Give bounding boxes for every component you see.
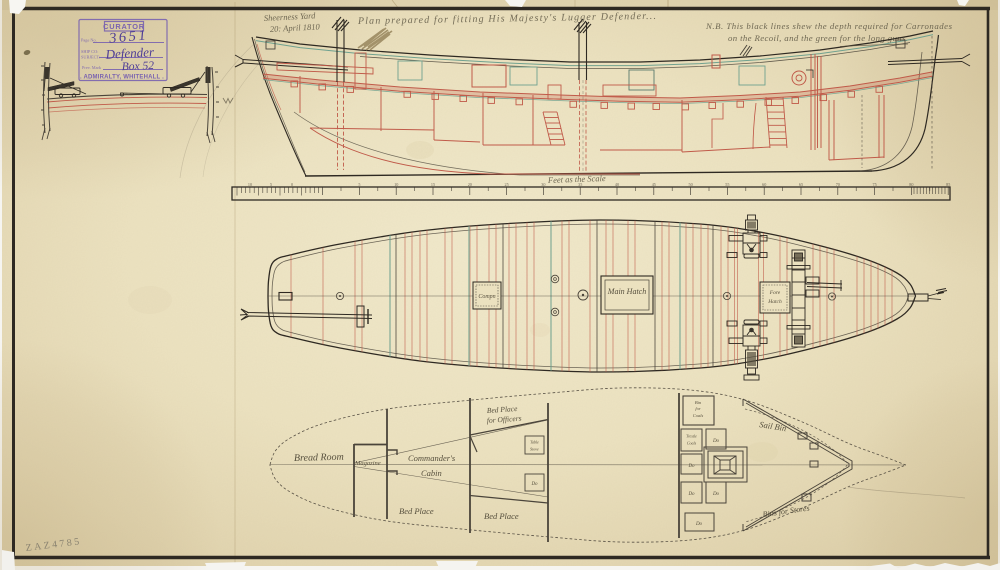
svg-text:0: 0	[291, 182, 293, 187]
svg-text:Commander's: Commander's	[408, 453, 456, 463]
svg-text:Do: Do	[687, 464, 695, 469]
svg-text:SHIP CO:: SHIP CO:	[81, 49, 98, 54]
svg-text:85: 85	[946, 182, 950, 187]
svg-text:Coals: Coals	[687, 441, 697, 446]
svg-text:Compn: Compn	[478, 294, 495, 300]
svg-text:60: 60	[762, 182, 766, 187]
svg-text:25: 25	[505, 182, 509, 187]
svg-text:Stove: Stove	[530, 447, 539, 452]
svg-text:N.B. This black lines shew the: N.B. This black lines shew the depth req…	[705, 21, 953, 31]
svg-text:65: 65	[799, 182, 803, 187]
svg-text:35: 35	[578, 182, 582, 187]
svg-text:SUBJECT:: SUBJECT:	[81, 55, 100, 60]
svg-text:30: 30	[541, 182, 545, 187]
svg-text:70: 70	[836, 182, 840, 187]
svg-text:Do: Do	[712, 439, 720, 444]
svg-text:Main Hatch: Main Hatch	[607, 287, 646, 296]
svg-text:80: 80	[909, 182, 913, 187]
svg-text:Do: Do	[687, 492, 695, 497]
svg-text:55: 55	[725, 182, 729, 187]
svg-text:Do: Do	[695, 522, 703, 527]
svg-text:Cabin: Cabin	[421, 468, 442, 478]
svg-text:. ADMIRALTY, WHITEHALL .: . ADMIRALTY, WHITEHALL .	[80, 75, 164, 81]
svg-text:Bed Place: Bed Place	[399, 506, 434, 516]
svg-text:40: 40	[615, 182, 619, 187]
svg-text:Page No.: Page No.	[81, 38, 97, 43]
svg-text:Defender: Defender	[104, 44, 155, 62]
svg-text:Box 52: Box 52	[122, 60, 155, 73]
svg-text:Trestle: Trestle	[686, 434, 697, 439]
svg-text:Coals: Coals	[693, 413, 704, 418]
svg-text:10: 10	[394, 182, 398, 187]
svg-text:Prev. Mark: Prev. Mark	[82, 65, 102, 70]
svg-text:45: 45	[652, 182, 656, 187]
svg-text:Bread Room: Bread Room	[294, 452, 344, 464]
svg-text:50: 50	[689, 182, 693, 187]
svg-text:Bin: Bin	[695, 400, 702, 405]
svg-text:Hatch: Hatch	[767, 299, 782, 305]
svg-text:Bed Place: Bed Place	[484, 511, 519, 521]
svg-text:Table: Table	[530, 440, 539, 445]
svg-text:5: 5	[358, 182, 360, 187]
svg-text:Magazine: Magazine	[354, 460, 381, 467]
svg-text:20: 20	[468, 182, 472, 187]
svg-text:75: 75	[873, 182, 877, 187]
svg-text:for: for	[695, 406, 701, 411]
svg-text:10: 10	[248, 182, 252, 187]
svg-text:Fore: Fore	[769, 290, 781, 296]
svg-text:Feet as the Scale: Feet as the Scale	[547, 173, 606, 185]
svg-text:5: 5	[270, 182, 272, 187]
svg-text:Do: Do	[712, 492, 720, 497]
svg-text:15: 15	[431, 182, 435, 187]
svg-text:Do: Do	[530, 482, 538, 487]
